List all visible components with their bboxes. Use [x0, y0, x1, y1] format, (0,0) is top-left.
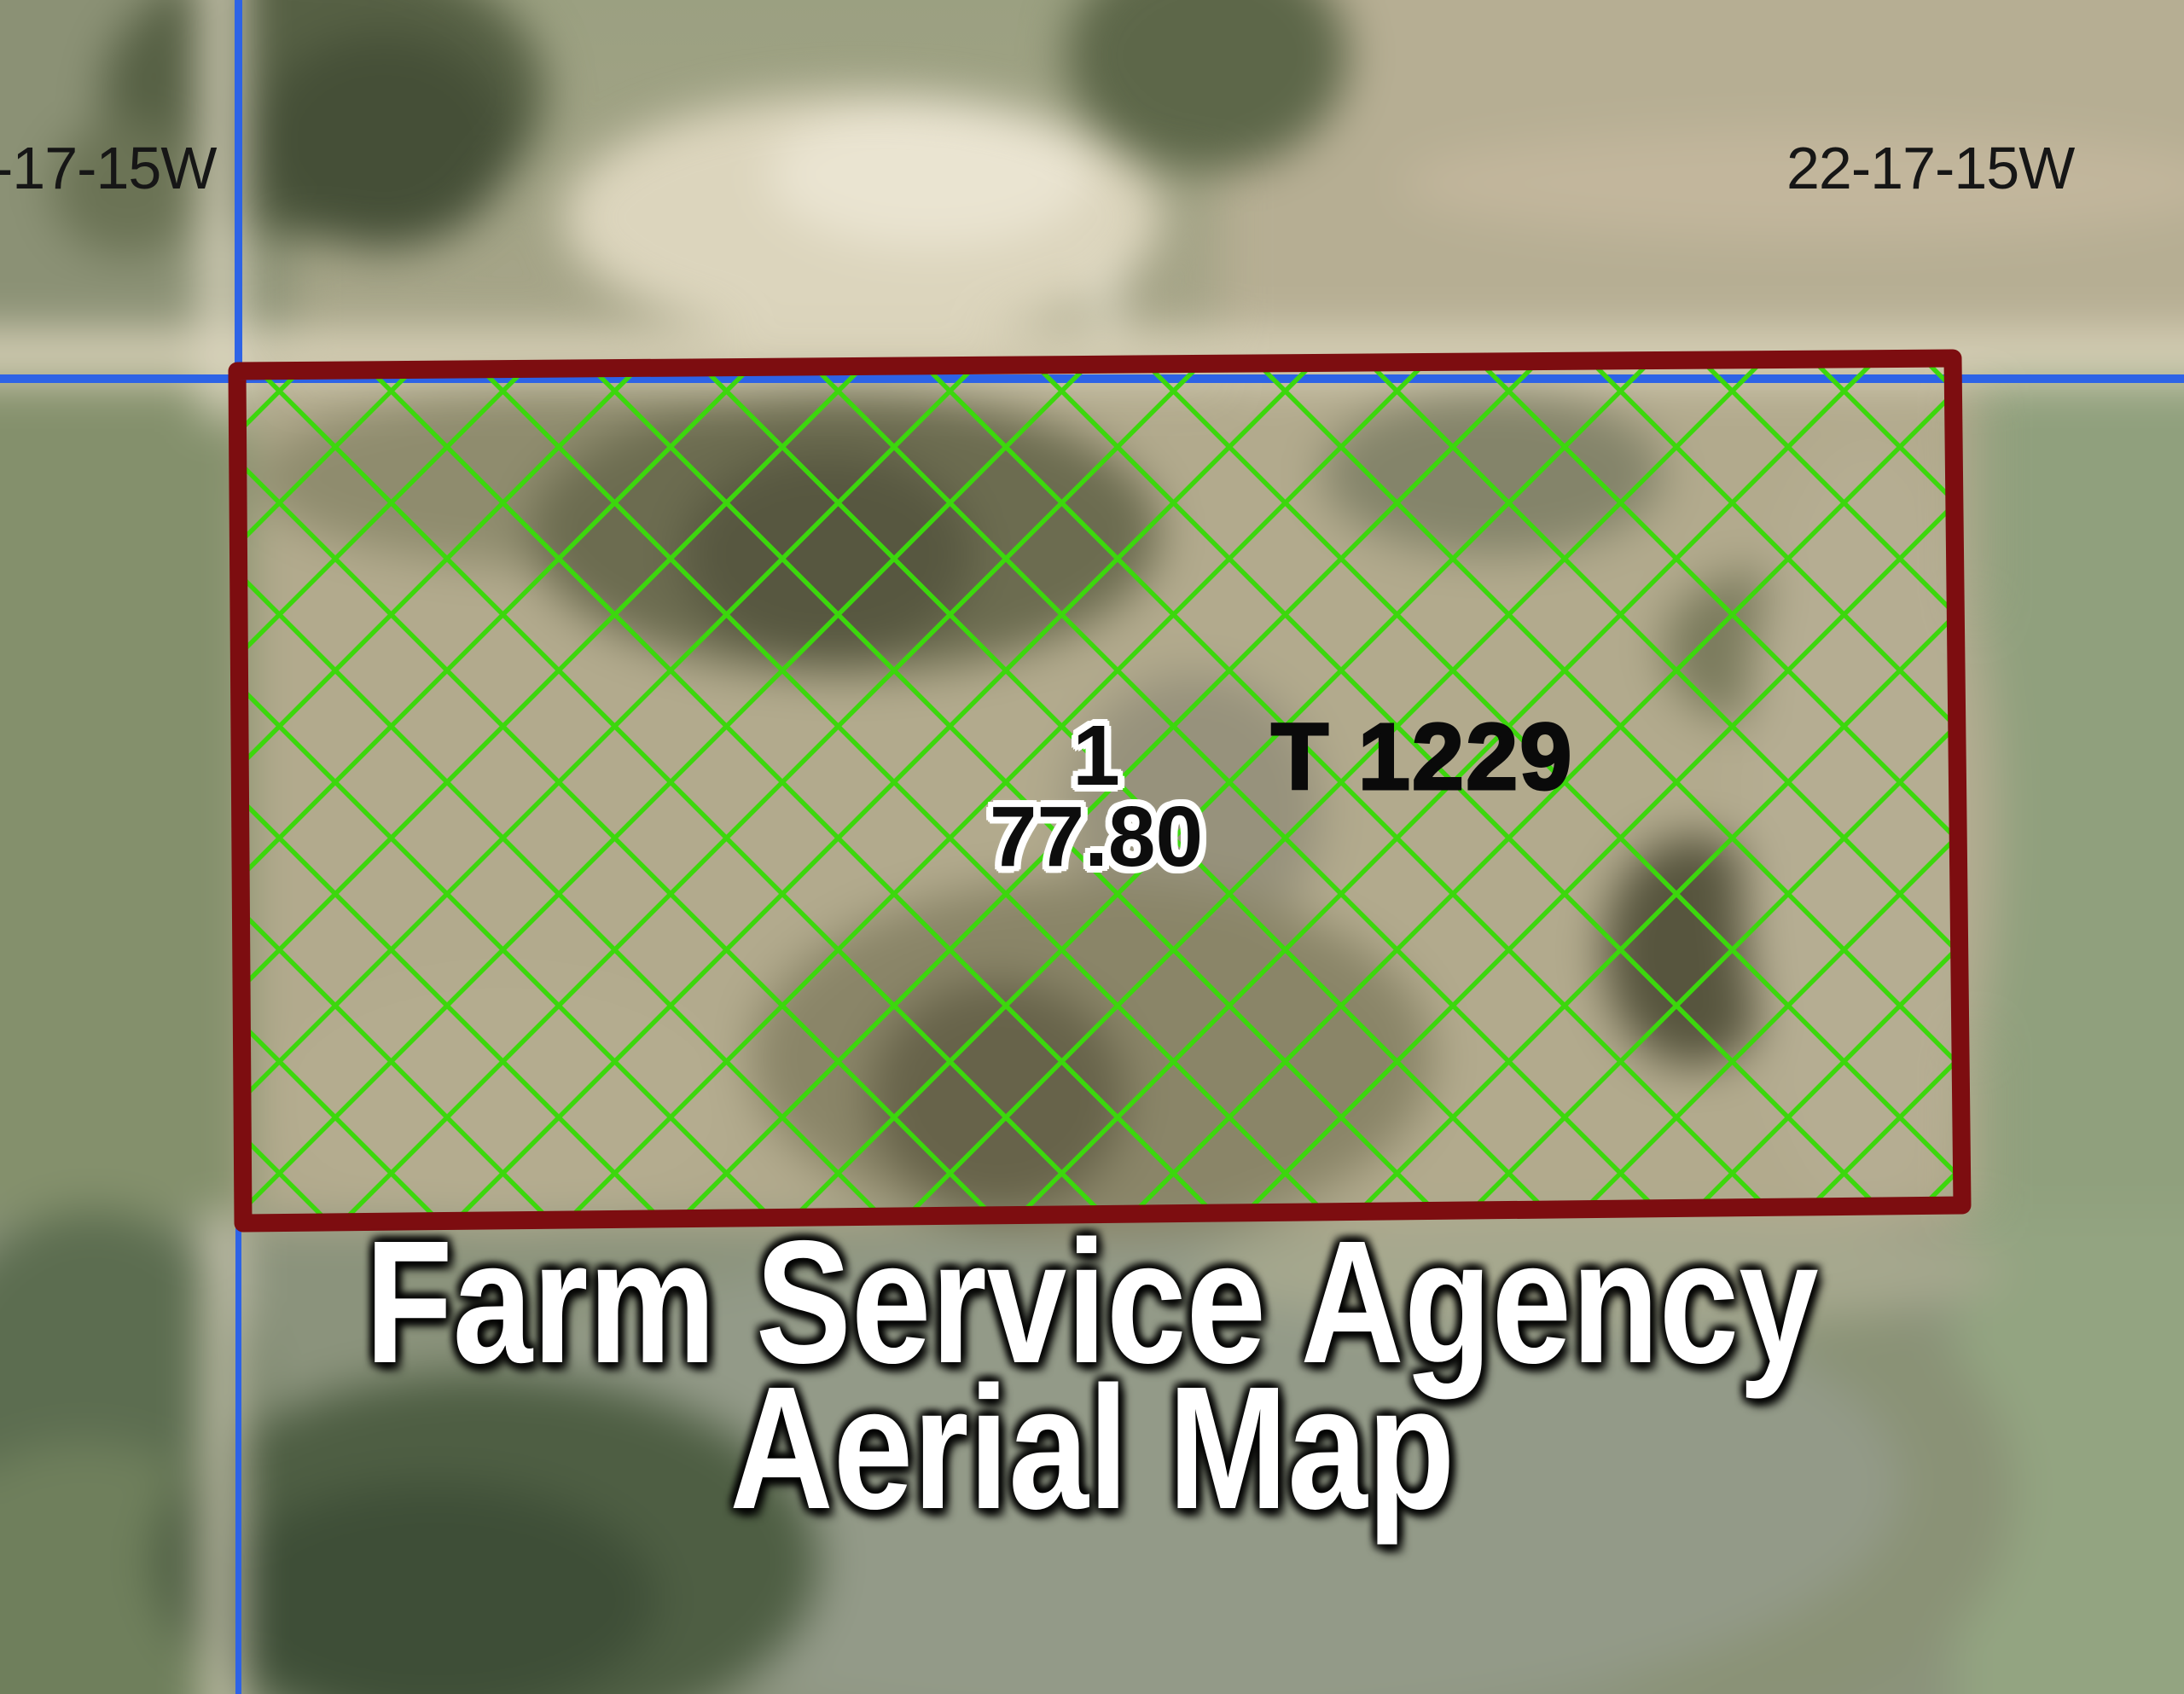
tract-number-label: T 1229 — [1271, 703, 1573, 811]
field-acres-label: 77.80 — [917, 788, 1275, 886]
map-title-line2-text: Aerial Map — [729, 1360, 1455, 1535]
map-title-line2: Aerial Map — [0, 1360, 2184, 1535]
section-label-left: -17-15W — [0, 134, 216, 202]
section-label-right: 22-17-15W — [1786, 134, 2074, 202]
fsa-aerial-map: -17-15W 22-17-15W 1 77.80 T 1229 Farm Se… — [0, 0, 2184, 1694]
